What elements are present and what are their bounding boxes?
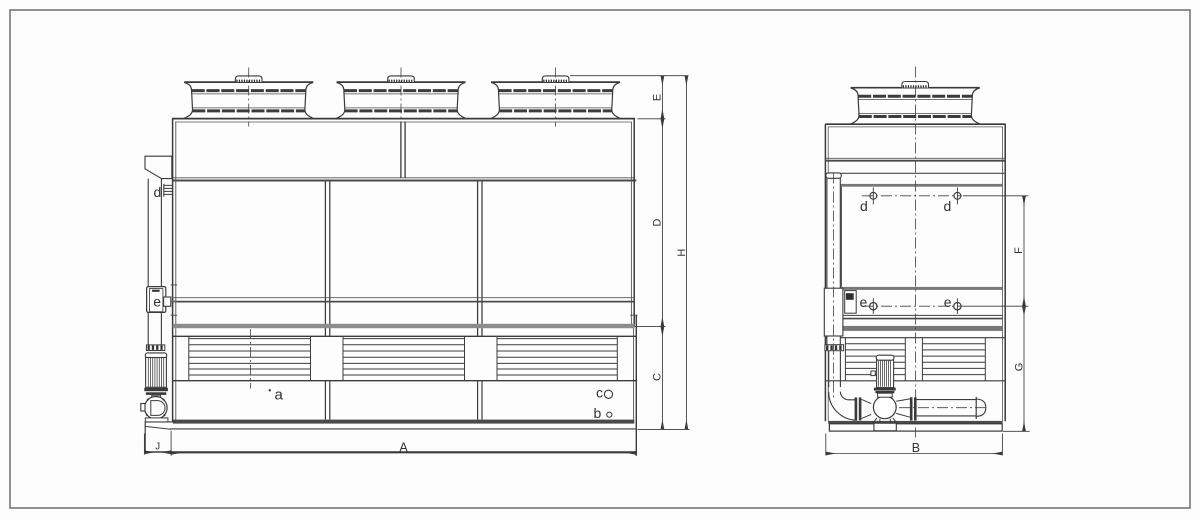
svg-text:d: d [944, 198, 952, 214]
svg-text:d: d [154, 184, 162, 200]
svg-text:G: G [1013, 363, 1025, 372]
svg-text:e: e [944, 294, 952, 310]
svg-text:e: e [153, 294, 161, 310]
svg-text:H: H [676, 249, 688, 257]
svg-text:D: D [652, 218, 664, 226]
svg-text:b: b [594, 405, 602, 421]
svg-text:C: C [652, 373, 664, 381]
svg-text:a: a [275, 387, 284, 404]
svg-text:d: d [860, 198, 868, 214]
svg-text:e: e [860, 294, 868, 310]
svg-text:E: E [652, 94, 664, 101]
svg-text:J: J [155, 441, 160, 452]
svg-text:c: c [596, 385, 603, 401]
svg-text:F: F [1013, 247, 1025, 254]
svg-text:B: B [912, 441, 920, 455]
svg-text:A: A [399, 440, 408, 454]
